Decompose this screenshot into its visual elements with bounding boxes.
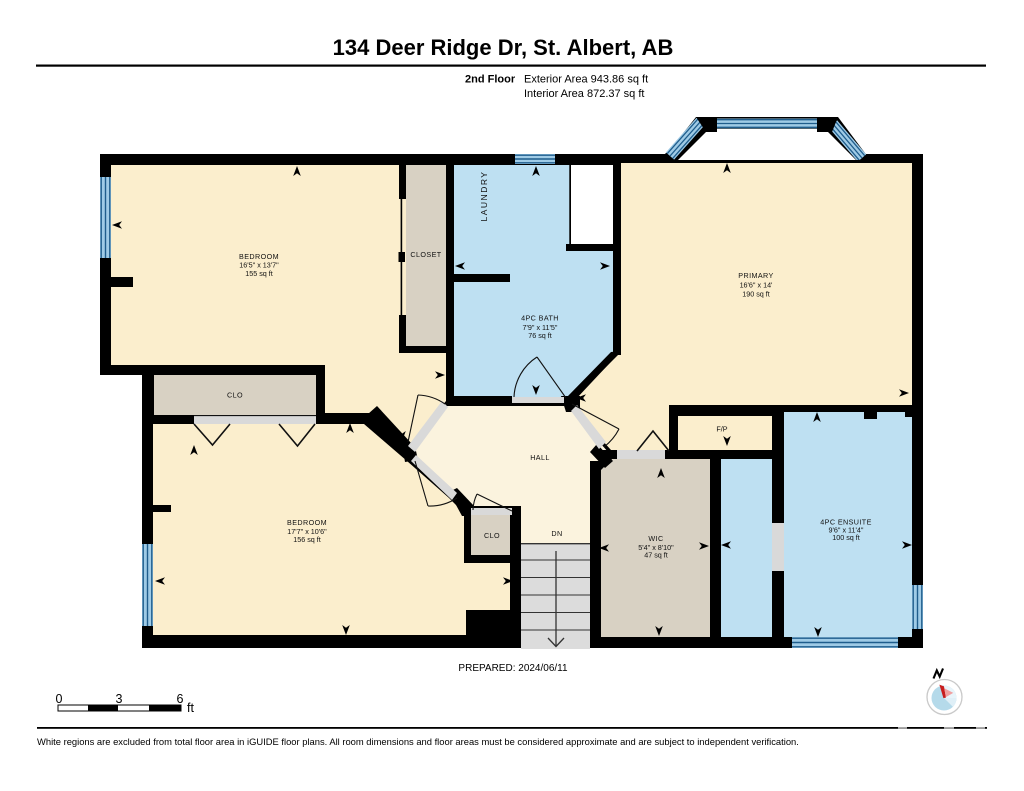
svg-text:6: 6 [177,692,184,706]
svg-text:ft: ft [187,701,194,715]
svg-text:2nd Floor: 2nd Floor [465,74,516,86]
svg-text:Interior Area 872.37 sq ft: Interior Area 872.37 sq ft [524,88,644,100]
svg-text:CLO: CLO [484,531,500,540]
svg-text:156 sq ft: 156 sq ft [293,535,321,544]
svg-text:Exterior Area 943.86 sq ft: Exterior Area 943.86 sq ft [524,74,648,86]
svg-text:White regions are excluded fro: White regions are excluded from total fl… [37,736,799,747]
svg-text:PRIMARY: PRIMARY [738,271,773,280]
svg-text:DN: DN [551,529,562,538]
svg-text:HALL: HALL [530,453,550,462]
svg-text:CLOSET: CLOSET [410,250,441,259]
svg-text:CLO: CLO [227,390,243,399]
svg-text:0: 0 [56,692,63,706]
svg-text:100 sq ft: 100 sq ft [832,533,860,542]
svg-text:190 sq ft: 190 sq ft [742,290,770,299]
svg-text:LAUNDRY: LAUNDRY [479,171,489,222]
svg-text:WIC: WIC [648,534,663,543]
svg-text:3: 3 [116,692,123,706]
svg-text:BEDROOM: BEDROOM [287,518,327,527]
svg-text:F/P: F/P [716,425,727,434]
svg-text:76 sq ft: 76 sq ft [528,331,552,340]
svg-text:PREPARED: 2024/06/11: PREPARED: 2024/06/11 [458,663,568,674]
svg-text:4PC BATH: 4PC BATH [521,314,559,323]
svg-text:155 sq ft: 155 sq ft [245,269,273,278]
svg-text:16'6" x 14': 16'6" x 14' [740,281,773,290]
svg-text:47 sq ft: 47 sq ft [644,551,668,560]
svg-text:134 Deer Ridge Dr, St. Albert,: 134 Deer Ridge Dr, St. Albert, AB [333,35,674,60]
